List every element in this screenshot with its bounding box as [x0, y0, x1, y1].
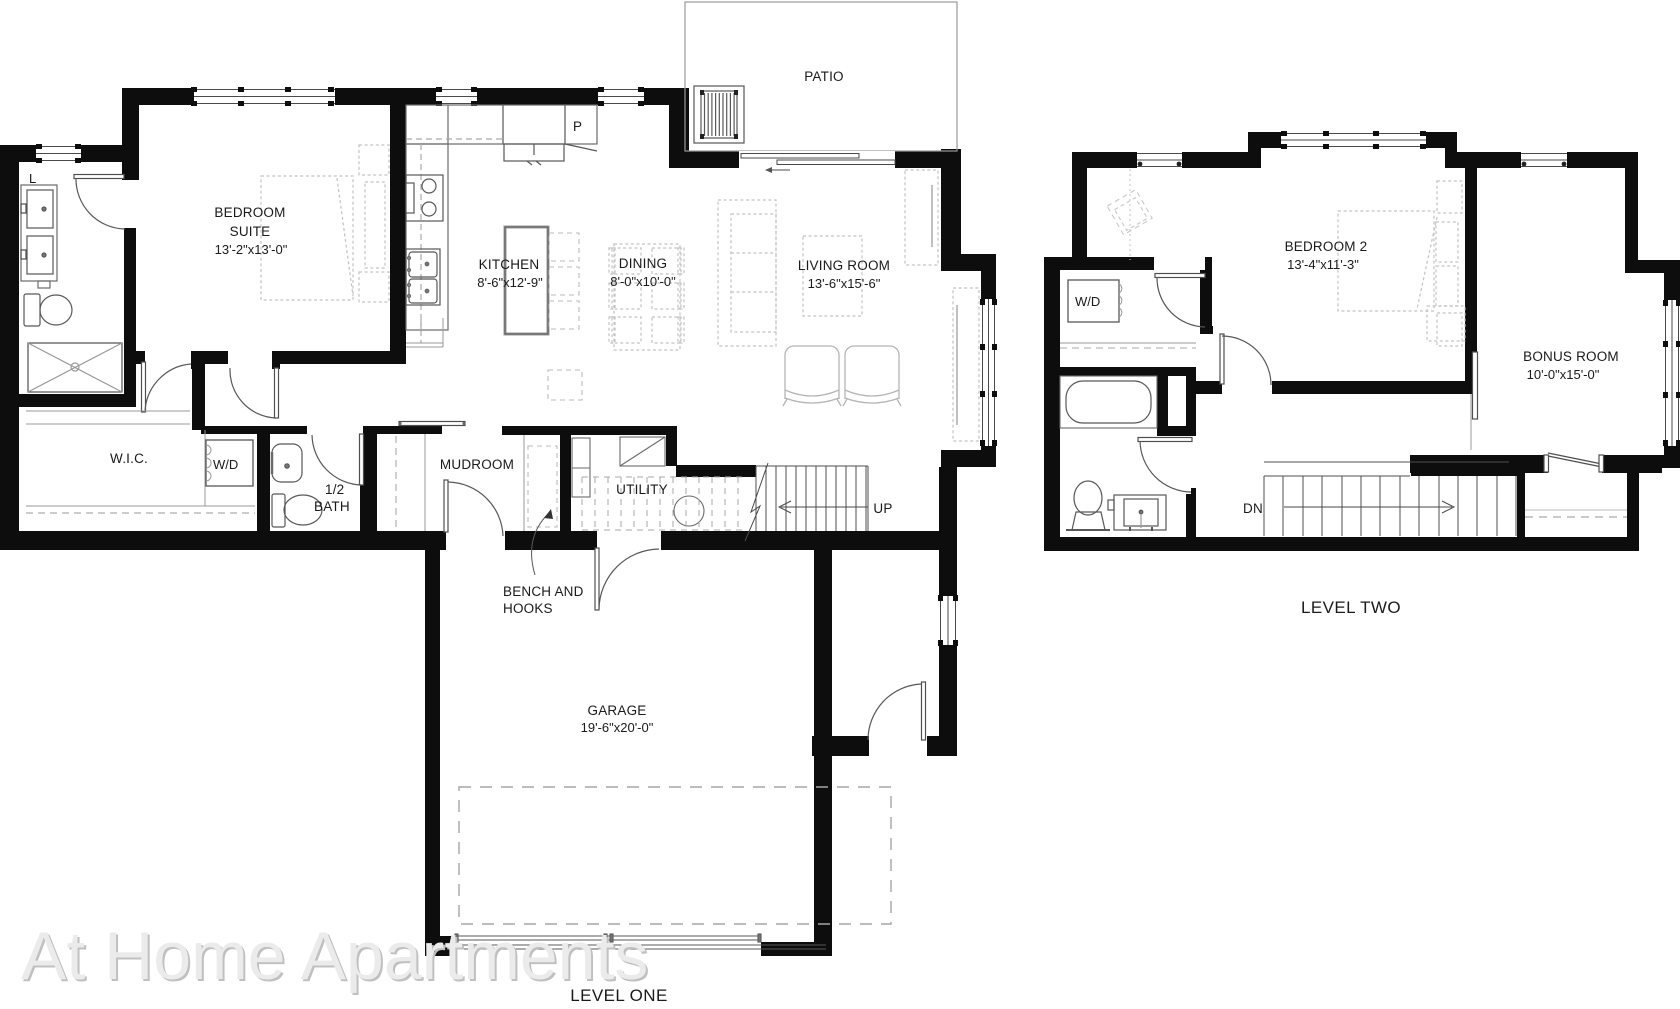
- svg-text:BATH: BATH: [314, 499, 350, 514]
- svg-text:W/D: W/D: [1075, 294, 1100, 309]
- svg-text:HOOKS: HOOKS: [503, 601, 553, 616]
- svg-text:13'-4"x11'-3": 13'-4"x11'-3": [1287, 257, 1359, 272]
- svg-text:GARAGE: GARAGE: [588, 703, 647, 718]
- svg-text:SUITE: SUITE: [230, 224, 271, 239]
- svg-text:At Home Apartments: At Home Apartments: [21, 918, 648, 994]
- svg-text:MUDROOM: MUDROOM: [440, 457, 514, 472]
- svg-text:8'-6"x12'-9": 8'-6"x12'-9": [477, 275, 543, 290]
- svg-text:W/D: W/D: [213, 457, 238, 472]
- svg-text:UP: UP: [873, 501, 892, 516]
- svg-text:LIVING ROOM: LIVING ROOM: [798, 258, 890, 273]
- svg-text:L: L: [29, 171, 36, 186]
- svg-text:DN: DN: [1243, 501, 1263, 516]
- svg-text:BEDROOM 2: BEDROOM 2: [1285, 239, 1368, 254]
- svg-text:P: P: [573, 119, 582, 134]
- svg-text:10'-0"x15'-0": 10'-0"x15'-0": [1527, 367, 1600, 382]
- svg-text:KITCHEN: KITCHEN: [479, 257, 540, 272]
- svg-text:BEDROOM: BEDROOM: [214, 205, 285, 220]
- svg-text:1/2: 1/2: [325, 482, 344, 497]
- svg-text:UTILITY: UTILITY: [616, 482, 668, 497]
- svg-text:13'-2"x13'-0": 13'-2"x13'-0": [215, 242, 288, 257]
- svg-text:BONUS ROOM: BONUS ROOM: [1523, 349, 1619, 364]
- svg-text:BENCH AND: BENCH AND: [503, 584, 584, 599]
- svg-text:13'-6"x15'-6": 13'-6"x15'-6": [808, 276, 881, 291]
- svg-text:W.I.C.: W.I.C.: [110, 451, 148, 466]
- svg-text:19'-6"x20'-0": 19'-6"x20'-0": [581, 720, 654, 735]
- svg-text:PATIO: PATIO: [804, 69, 844, 84]
- svg-text:8'-0"x10'-0": 8'-0"x10'-0": [610, 274, 676, 289]
- svg-text:DINING: DINING: [619, 256, 667, 271]
- svg-text:LEVEL TWO: LEVEL TWO: [1301, 598, 1401, 617]
